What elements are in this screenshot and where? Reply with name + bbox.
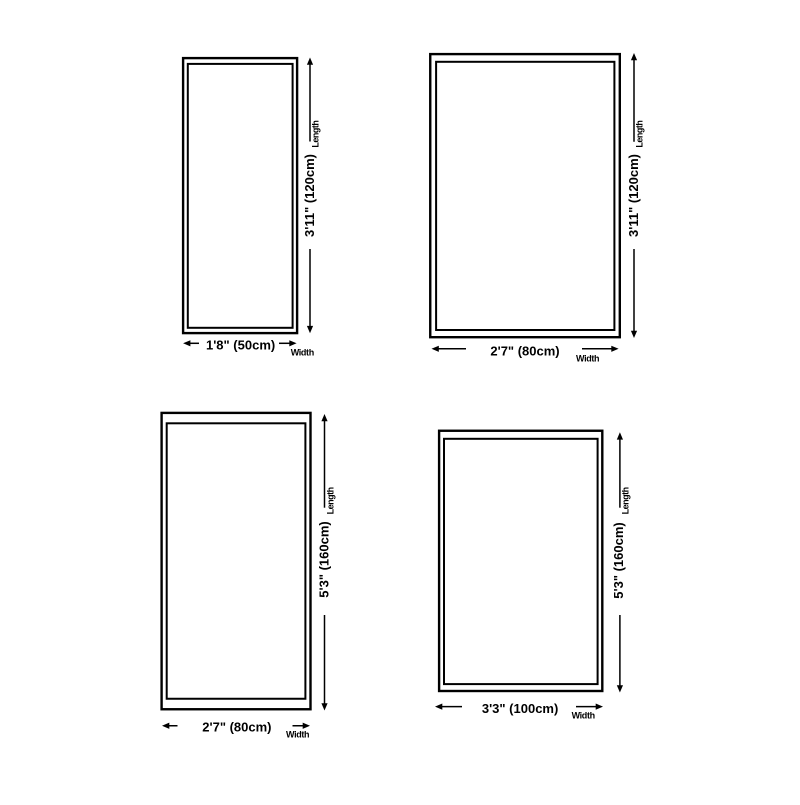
svg-text:Length: Length (621, 487, 631, 514)
svg-text:2'7" (80cm): 2'7" (80cm) (202, 719, 271, 734)
svg-text:3'11" (120cm): 3'11" (120cm) (626, 154, 641, 237)
svg-text:2'7" (80cm): 2'7" (80cm) (490, 344, 559, 359)
svg-text:Width: Width (576, 353, 599, 363)
svg-text:Length: Length (635, 121, 645, 148)
svg-text:1'8" (50cm): 1'8" (50cm) (206, 338, 275, 353)
svg-text:3'11" (120cm): 3'11" (120cm) (302, 154, 317, 237)
svg-text:5'3" (160cm): 5'3" (160cm) (611, 522, 626, 598)
svg-text:5'3" (160cm): 5'3" (160cm) (317, 521, 332, 597)
svg-text:Width: Width (286, 730, 309, 740)
svg-text:Length: Length (326, 487, 336, 514)
svg-text:Width: Width (572, 710, 595, 720)
svg-text:3'3" (100cm): 3'3" (100cm) (482, 701, 558, 716)
svg-text:Width: Width (291, 347, 314, 357)
svg-text:Length: Length (311, 121, 321, 148)
